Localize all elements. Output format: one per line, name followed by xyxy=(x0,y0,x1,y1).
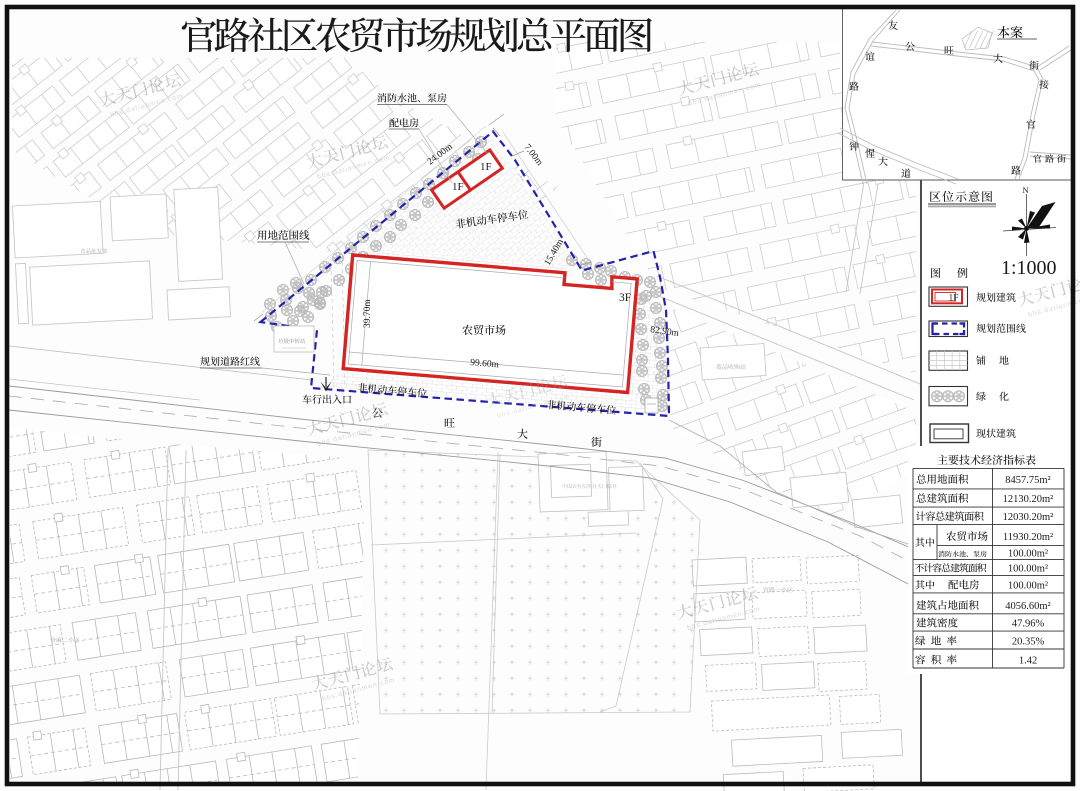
svg-text:N: N xyxy=(1023,185,1029,195)
svg-text:3F: 3F xyxy=(619,292,631,304)
svg-text:12030.20m²: 12030.20m² xyxy=(1003,512,1054,523)
svg-text:12130.20m²: 12130.20m² xyxy=(1003,494,1054,505)
svg-text:11930.20m²: 11930.20m² xyxy=(1003,532,1053,543)
svg-text:1F: 1F xyxy=(949,294,959,304)
svg-text:4056.60m²: 4056.60m² xyxy=(1005,601,1050,612)
svg-text:1F: 1F xyxy=(480,161,492,173)
svg-text:100.00m²: 100.00m² xyxy=(1008,549,1048,560)
svg-text:20.35%: 20.35% xyxy=(1012,637,1045,648)
svg-text:1F: 1F xyxy=(452,181,464,193)
svg-text:47.96%: 47.96% xyxy=(1012,619,1045,630)
svg-text:100.00m²: 100.00m² xyxy=(1008,581,1048,592)
svg-text:1.42: 1.42 xyxy=(1019,656,1037,667)
svg-text:8457.75m²: 8457.75m² xyxy=(1005,475,1050,486)
svg-text:1:1000: 1:1000 xyxy=(1001,257,1057,279)
svg-text:39.70m: 39.70m xyxy=(363,299,373,328)
svg-text:100.00m²: 100.00m² xyxy=(1008,564,1048,575)
